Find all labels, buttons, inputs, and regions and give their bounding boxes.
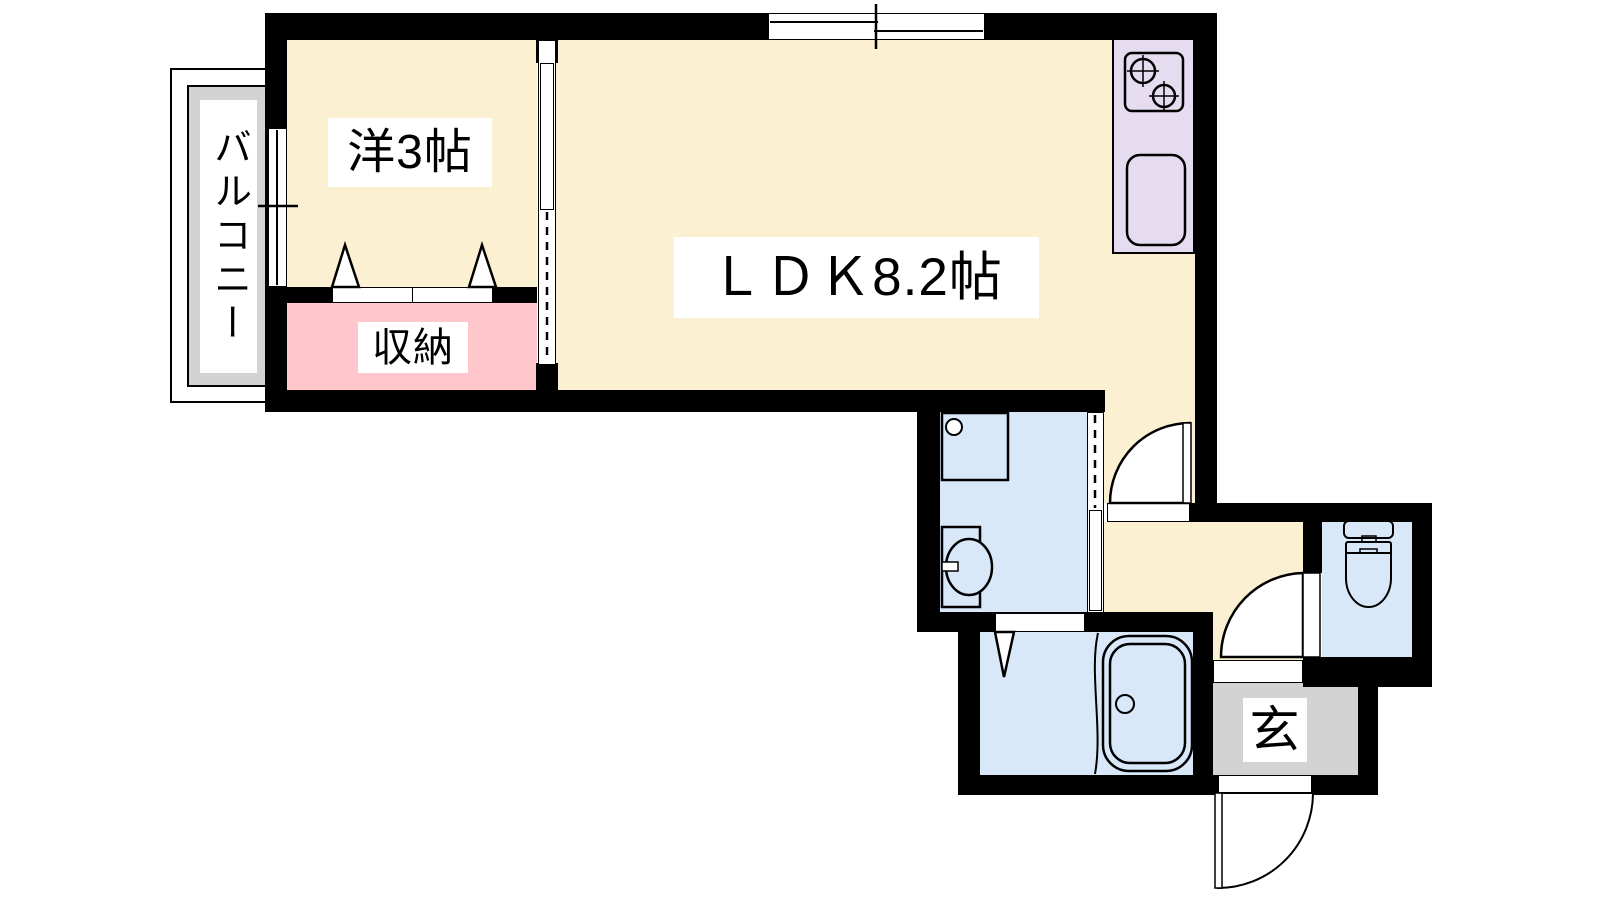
entrance-door-swing [1218,793,1313,888]
floor-plan: バルコニー 洋3帖 ＬＤＫ8.2帖 収納 玄 [0,0,1600,900]
vanity-spout-icon [942,562,958,571]
bath-door-triangle [995,632,1014,677]
label-western-room: 洋3帖 [328,118,492,187]
bath-floor-edge [1095,633,1098,774]
washer-faucet-icon [946,419,962,435]
closet-swing-triangle-left [332,245,359,287]
toilet-door-leaf [1303,573,1320,657]
label-entrance: 玄 [1243,698,1307,762]
closet-swing-triangle-right [469,245,496,287]
ldk-hall-door-swing [1110,423,1190,503]
toilet-bowl-icon [1346,553,1391,607]
label-storage: 収納 [358,322,468,373]
ldk-hall-door-leaf [1183,423,1191,503]
label-balcony: バルコニー [200,100,257,373]
label-ldk: ＬＤＫ8.2帖 [674,237,1039,318]
toilet-door-swing [1221,573,1303,657]
entrance-door-leaf [1215,793,1222,888]
kitchen-sink-icon [1127,155,1185,245]
